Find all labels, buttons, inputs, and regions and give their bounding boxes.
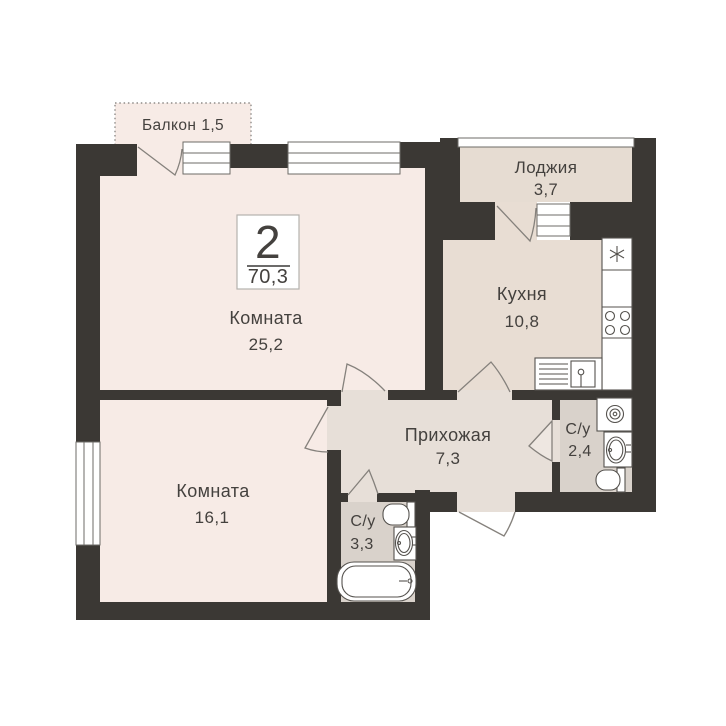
entrance-door	[459, 512, 515, 536]
window-left	[76, 442, 100, 545]
floor-plan-canvas: 2 70,3 Балкон1,5 Лоджия 3,7 Комната 25,2…	[0, 0, 726, 726]
loggia-window	[458, 138, 634, 147]
balcony-label: Балкон1,5	[142, 117, 224, 134]
toilet-icon	[383, 502, 415, 527]
sink-icon	[604, 432, 632, 467]
badge-total-area: 70,3	[248, 266, 289, 288]
balcony-area-value: 1,5	[201, 117, 224, 134]
loggia-area-value: 3,7	[534, 181, 558, 199]
washing-machine-icon	[597, 398, 632, 431]
window-1	[183, 142, 230, 174]
balcony-name: Балкон	[142, 117, 196, 134]
kitchen-name: Кухня	[497, 284, 547, 304]
hallway-area-value: 7,3	[436, 449, 461, 468]
bathroom-24-name: С/у	[565, 421, 590, 438]
bathroom-24-area-value: 2,4	[568, 443, 591, 460]
loggia-name: Лоджия	[515, 158, 578, 177]
kitchen-loggia-window	[537, 204, 570, 236]
window-2	[288, 142, 400, 174]
sink-icon	[394, 527, 416, 560]
room-16-area-value: 16,1	[195, 508, 230, 527]
floor-plan: 2 70,3 Балкон1,5 Лоджия 3,7 Комната 25,2…	[0, 0, 726, 726]
bathtub-icon	[337, 562, 416, 601]
kitchen-area-value: 10,8	[505, 312, 540, 331]
living-room-16-area	[100, 400, 327, 602]
room-25-area-value: 25,2	[249, 335, 284, 354]
apartment-badge: 2 70,3	[237, 215, 299, 289]
bathroom-33-name: С/у	[350, 513, 375, 530]
room-25-name: Комната	[229, 308, 303, 328]
room-16-name: Комната	[176, 481, 250, 501]
badge-rooms-count: 2	[255, 216, 281, 268]
hallway-name: Прихожая	[405, 425, 492, 445]
toilet-icon	[596, 468, 625, 492]
kitchen-sink-icon	[535, 358, 602, 390]
bathroom-33-area-value: 3,3	[350, 536, 373, 553]
